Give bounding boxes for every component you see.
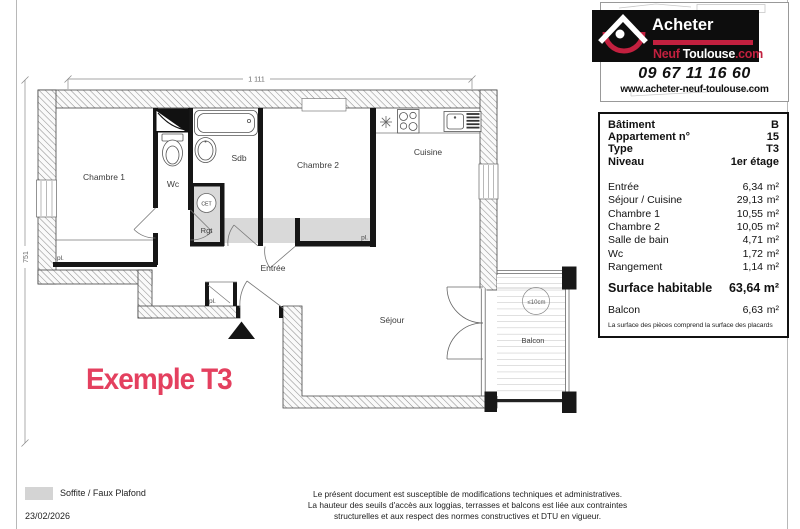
house-logo-icon bbox=[594, 10, 652, 62]
shaft-symbol bbox=[155, 109, 189, 133]
table-row: Entrée6,34m² bbox=[608, 181, 779, 194]
room-label-rgt: Rgt bbox=[201, 226, 214, 235]
french-door bbox=[447, 287, 487, 396]
apartment-info-table: BâtimentB Appartement n°15 TypeT3 Niveau… bbox=[598, 112, 789, 338]
toilet-icon bbox=[162, 134, 183, 166]
balcony-threshold-label: ≤10cm bbox=[528, 300, 546, 306]
table-row: Chambre 110,55m² bbox=[608, 208, 779, 221]
table-footnote: La surface des pièces comprend la surfac… bbox=[608, 322, 779, 329]
info-header-rows: BâtimentB Appartement n°15 TypeT3 Niveau… bbox=[608, 119, 779, 168]
room-label-chambre1: Chambre 1 bbox=[83, 172, 125, 182]
room-label-cuisine: Cuisine bbox=[414, 147, 443, 157]
table-row: Wc1,72m² bbox=[608, 248, 779, 261]
table-row: Séjour / Cuisine29,13m² bbox=[608, 194, 779, 207]
room-label-wc: Wc bbox=[167, 179, 180, 189]
placard-label-2: pl. bbox=[209, 298, 216, 305]
table-row: BâtimentB bbox=[608, 119, 779, 131]
window-left bbox=[37, 180, 57, 217]
table-row: Rangement1,14m² bbox=[608, 261, 779, 274]
placard-label-1: pl. bbox=[57, 255, 64, 262]
agency-website: www.acheter-neuf-toulouse.com bbox=[601, 84, 788, 95]
bathtub-icon bbox=[195, 111, 258, 136]
agency-phone: 09 67 11 16 60 bbox=[601, 65, 788, 83]
room-label-chambre2: Chambre 2 bbox=[297, 160, 339, 170]
dimension-left-label: 751 bbox=[23, 251, 30, 263]
dimension-top-label: 1 111 bbox=[248, 77, 265, 84]
balcony-row: Balcon6,63m² bbox=[608, 304, 779, 317]
light-point-icon bbox=[380, 116, 392, 128]
brand-name-line2: Neuf Toulouse.com bbox=[653, 47, 763, 61]
room-area-rows: Entrée6,34m² Séjour / Cuisine29,13m² Cha… bbox=[608, 181, 779, 275]
table-row: Appartement n°15 bbox=[608, 131, 779, 143]
floor-plan-drawing: 1 111 751 bbox=[0, 0, 600, 480]
example-type-label: Exemple T3 bbox=[86, 363, 232, 397]
table-row: TypeT3 bbox=[608, 143, 779, 155]
table-row: Niveau1er étage bbox=[608, 156, 779, 168]
wall-openings bbox=[37, 99, 499, 218]
kitchen-sink-icon bbox=[444, 112, 481, 132]
soffit-legend-swatch bbox=[25, 487, 53, 500]
soffit-legend-label: Soffite / Faux Plafond bbox=[60, 488, 146, 498]
agency-logo-card: Acheter Neuf Toulouse.com 09 67 11 16 60… bbox=[600, 2, 789, 102]
washbasin-icon bbox=[195, 138, 216, 163]
brand-dotcom: .com bbox=[735, 47, 763, 61]
exterior-walls bbox=[38, 90, 497, 408]
table-row: Salle de bain4,71m² bbox=[608, 234, 779, 247]
room-label-sdb: Sdb bbox=[231, 153, 246, 163]
plan-date: 23/02/2026 bbox=[25, 511, 70, 521]
brand-red-bar bbox=[653, 40, 753, 45]
brand-neuf: Neuf bbox=[653, 47, 680, 61]
table-row: Chambre 210,05m² bbox=[608, 221, 779, 234]
brand-name-line1: Acheter bbox=[652, 16, 713, 35]
floor-plan-sheet: { "page": { "example_label": "Exemple T3… bbox=[0, 0, 800, 529]
room-label-entree: Entrée bbox=[260, 263, 285, 273]
window-right bbox=[479, 164, 498, 199]
room-label-balcon: Balcon bbox=[522, 336, 545, 345]
entrance-marker-icon bbox=[228, 322, 255, 340]
logo-banner: Acheter Neuf Toulouse.com bbox=[592, 10, 759, 62]
cooktop-icon bbox=[398, 110, 420, 134]
water-heater-label: CET bbox=[201, 202, 212, 208]
legal-disclaimer: Le présent document est susceptible de m… bbox=[255, 489, 680, 521]
room-label-sejour: Séjour bbox=[380, 315, 405, 325]
brand-toulouse: Toulouse bbox=[680, 47, 735, 61]
total-surface-row: Surface habitable63,64 m² bbox=[608, 280, 779, 296]
placard-label-3: pl. bbox=[361, 235, 368, 242]
